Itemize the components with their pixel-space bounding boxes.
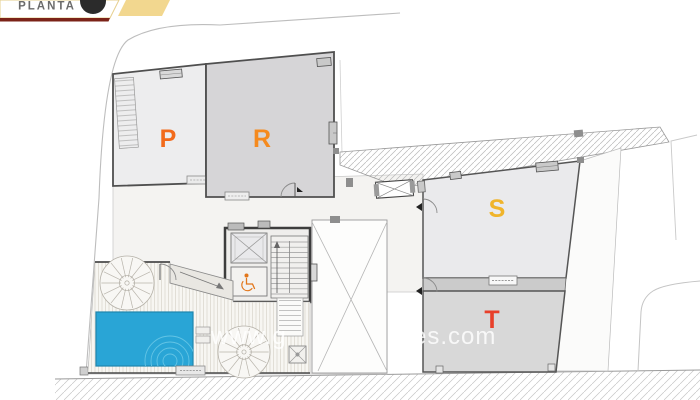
banner-ribbon (118, 0, 170, 16)
stairs (271, 236, 308, 298)
window (160, 69, 183, 79)
room-p: P (113, 64, 213, 186)
floor-plan-drawing: P R S (0, 0, 700, 400)
shower-drain (289, 346, 306, 363)
plan-banner: PLANTA (0, 0, 170, 22)
elevator-shaft (231, 233, 267, 263)
floor-plan-page: P R S (0, 0, 700, 400)
window (317, 57, 332, 66)
wall-band (423, 276, 566, 291)
room-r-label: R (253, 125, 271, 153)
room-t-label: T (484, 306, 499, 334)
void-area (309, 216, 387, 373)
window (450, 171, 462, 179)
window (536, 161, 559, 172)
room-s-label: S (489, 195, 506, 223)
room-t: T (423, 291, 565, 373)
palm-tree (218, 326, 270, 378)
elevator (231, 267, 267, 296)
banner-title: PLANTA (18, 1, 76, 13)
banner-underline (0, 18, 110, 22)
room-r: R (206, 52, 339, 200)
room-p-label: P (160, 125, 177, 153)
palm-tree (100, 256, 154, 310)
